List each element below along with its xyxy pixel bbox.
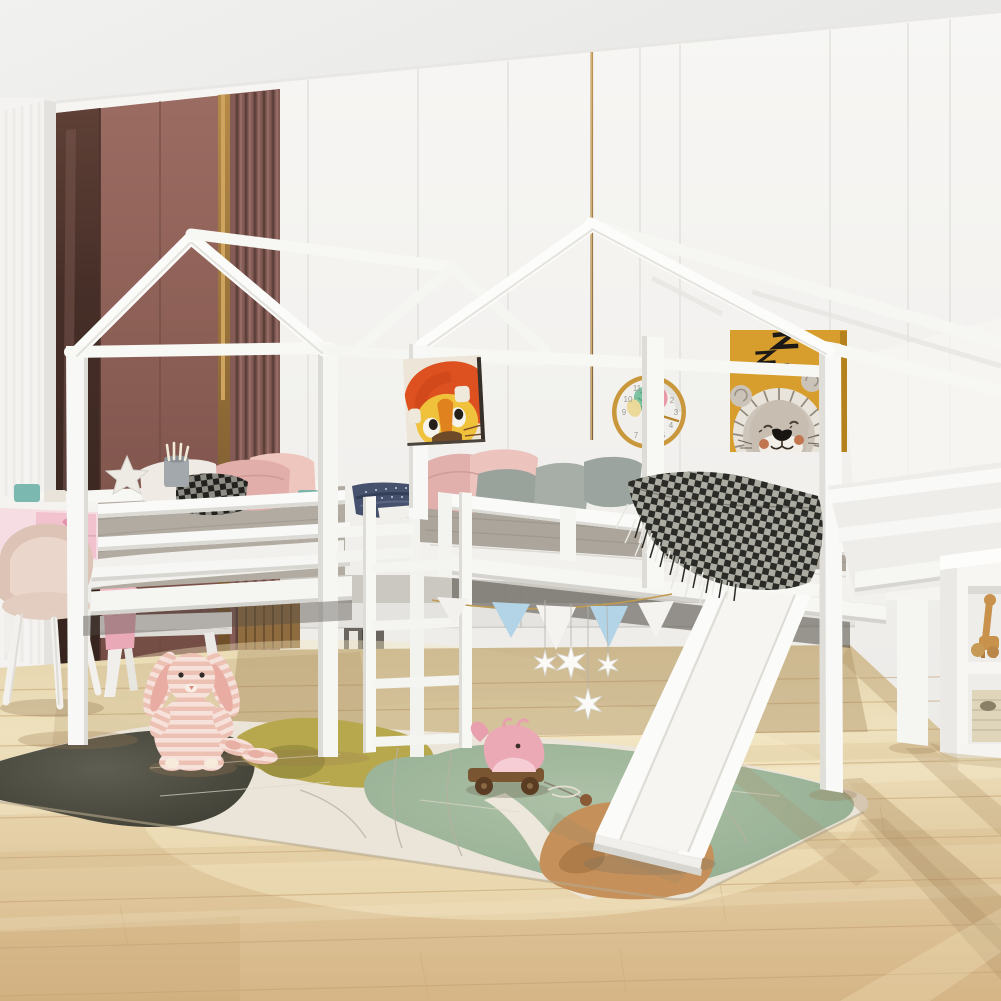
svg-text:3: 3 <box>674 408 679 417</box>
svg-text:10: 10 <box>624 395 633 404</box>
svg-text:2: 2 <box>670 396 675 405</box>
svg-text:11: 11 <box>633 384 642 393</box>
svg-text:4: 4 <box>669 421 674 430</box>
svg-text:7: 7 <box>634 431 639 440</box>
svg-text:9: 9 <box>622 408 627 417</box>
